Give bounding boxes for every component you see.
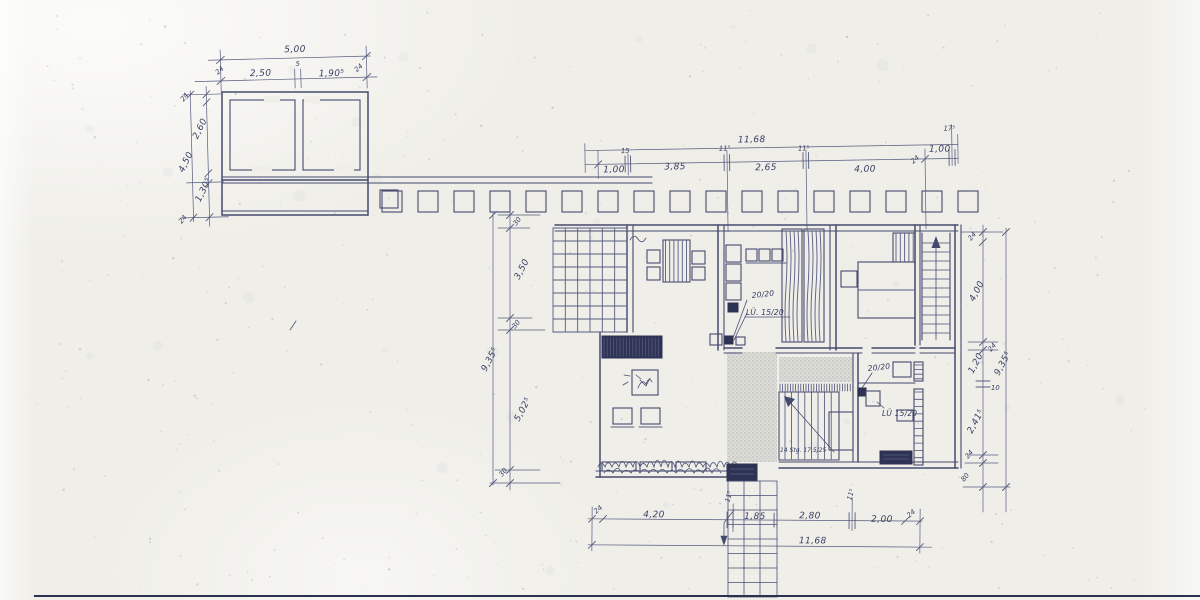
dim-bottom-total: 11,68 bbox=[799, 536, 827, 546]
dim-outbuilding-total-depth: 4,50 bbox=[177, 150, 196, 174]
dim-bottom-seg2: 1,85 bbox=[744, 512, 766, 522]
dim-top-tick5: 17⁵ bbox=[944, 124, 956, 132]
pergola-row bbox=[222, 177, 978, 212]
dimension-chain-left: 30 3,50 30 5,02⁵ 30 9,35⁵ bbox=[480, 210, 560, 490]
dim-top-seg1: 1,00 bbox=[603, 165, 625, 175]
dim-bottom-wall-left: 24 bbox=[592, 504, 604, 516]
pencil-mark bbox=[290, 321, 296, 330]
dim-bottom-tick2: 11⁵ bbox=[845, 488, 856, 501]
threshold-step bbox=[727, 464, 757, 481]
scan-bottom-edge bbox=[34, 595, 1200, 597]
dim-bottom-seg1: 4,20 bbox=[643, 510, 665, 520]
dim-bottom-seg4: 2,00 bbox=[871, 515, 893, 525]
dim-right-wall3: 10 bbox=[991, 384, 1000, 392]
dim-top-seg5: 1,00 bbox=[929, 144, 951, 154]
scan-noise bbox=[31, 10, 1146, 590]
dim-right-seg4: 80 bbox=[959, 472, 971, 484]
stair-up-arrow bbox=[784, 396, 795, 407]
label-bath-duct: 20/20 bbox=[867, 362, 890, 373]
dimension-chain-top: 11,68 1,00 15 3,85 11⁵ 2,65 11⁵ 4,00 24 … bbox=[585, 124, 959, 233]
stair-up-arrow bbox=[932, 236, 941, 248]
door-mat bbox=[880, 451, 912, 464]
dim-outbuilding-lwall-top: 24 bbox=[179, 91, 191, 103]
nightstand bbox=[841, 271, 857, 287]
dim-outbuilding-lwall-bottom: 24 bbox=[177, 213, 189, 225]
dim-top-seg4: 4,00 bbox=[854, 165, 876, 175]
dining-set bbox=[630, 236, 705, 282]
blueprint-scan-page: 5,00 24 2,50 5 1,90⁵ 24 24 2,60 4,50 1,3… bbox=[0, 0, 1200, 600]
dim-left-wall-top: 30 bbox=[511, 216, 523, 228]
dim-top-seg3: 2,65 bbox=[755, 163, 777, 173]
dim-outbuilding-room-left: 2,50 bbox=[250, 69, 272, 80]
dim-outbuilding-plinth: 1,30⁵ bbox=[194, 176, 214, 203]
dim-right-total: 9,35⁵ bbox=[993, 350, 1014, 377]
internal-stair: 14 Stg. 17,5/25 bbox=[779, 384, 853, 460]
dim-outbuilding-total-width: 5,00 bbox=[284, 45, 306, 56]
walkway-down-arrow bbox=[720, 536, 727, 546]
dim-outbuilding-wall-left: 24 bbox=[214, 65, 226, 77]
dim-left-total: 9,35⁵ bbox=[480, 346, 501, 373]
dim-top-tick3: 11⁵ bbox=[798, 144, 810, 152]
label-stair-note: 14 Stg. 17,5/25 bbox=[780, 447, 827, 454]
dim-outbuilding-wall-right: 24 bbox=[353, 62, 365, 74]
external-stair bbox=[922, 233, 950, 340]
dim-bottom-tick1: 11⁵ bbox=[723, 490, 734, 503]
dim-right-seg1: 4,00 bbox=[968, 280, 987, 304]
outbuilding-plan bbox=[222, 92, 398, 215]
dim-top-total: 11,68 bbox=[738, 135, 766, 145]
terrace-tiles bbox=[553, 228, 627, 332]
dim-right-seg3: 2,41⁵ bbox=[966, 408, 987, 435]
dim-left-wall-mid: 30 bbox=[510, 319, 522, 331]
stool bbox=[641, 408, 660, 424]
bathroom: 20/20 LÜ 15/20 bbox=[858, 362, 923, 465]
dim-left-seg-bottom: 5,02⁵ bbox=[513, 396, 534, 423]
dim-outbuilding-wall-mid: 5 bbox=[295, 60, 300, 68]
entry-corridor bbox=[727, 352, 777, 462]
dim-outbuilding-room-right: 1,90⁵ bbox=[319, 69, 345, 80]
dim-top-tick1: 15 bbox=[621, 147, 630, 155]
dim-right-wall4: 24 bbox=[963, 449, 975, 461]
sideboard-wall bbox=[602, 336, 662, 358]
label-bath-vent: LÜ 15/20 bbox=[882, 409, 917, 418]
stair-landing bbox=[779, 357, 853, 382]
dim-top-seg2: 3,85 bbox=[664, 162, 686, 172]
dim-top-tick2: 11⁵ bbox=[719, 145, 731, 153]
radiator bbox=[914, 389, 923, 465]
dim-top-tick4: 24 bbox=[909, 154, 921, 166]
floor-plan-drawing: 5,00 24 2,50 5 1,90⁵ 24 24 2,60 4,50 1,3… bbox=[0, 0, 1200, 600]
dim-bottom-seg3: 2,80 bbox=[799, 511, 821, 521]
kitchen: 20/20 LÜ. 15/20 bbox=[710, 229, 824, 345]
patio bbox=[598, 336, 738, 473]
stool bbox=[613, 408, 632, 424]
outbuilding-dimensions: 5,00 24 2,50 5 1,90⁵ 24 24 2,60 4,50 1,3… bbox=[172, 43, 380, 227]
dimension-chain-right: 24 4,00 24 1,20 10 2,41⁵ 24 80 9,35⁵ bbox=[959, 225, 1013, 512]
bedroom bbox=[841, 233, 915, 318]
dim-right-wall2: 24 bbox=[986, 342, 998, 354]
handwritten-squiggle bbox=[630, 236, 646, 242]
dim-left-wall-bottom: 30 bbox=[497, 467, 509, 479]
hedge-scribble bbox=[598, 460, 738, 467]
label-kitchen-vent: LÜ. 15/20 bbox=[746, 308, 784, 317]
dim-bottom-wall-right: 24 bbox=[905, 508, 917, 520]
label-kitchen-duct: 20/20 bbox=[751, 289, 774, 300]
main-floor-plan: 20/20 LÜ. 15/20 bbox=[290, 225, 961, 597]
dim-left-seg-top: 3,50 bbox=[513, 258, 532, 282]
